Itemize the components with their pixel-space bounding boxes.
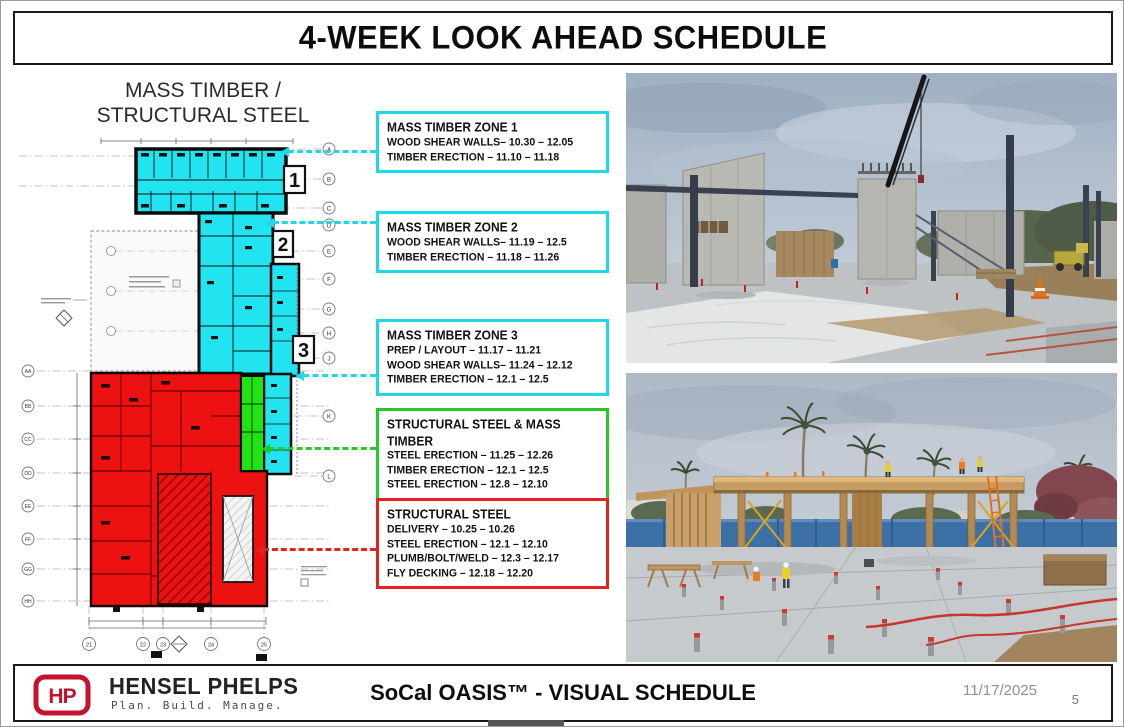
zone-marker-1: 1 xyxy=(284,166,305,193)
leader-zone3-arrowhead xyxy=(295,371,304,381)
leader-steel xyxy=(263,548,376,551)
plan-zone2-mass-timber xyxy=(199,213,273,374)
zone-marker-3: 3 xyxy=(293,336,314,363)
footer-date: 11/17/2025 xyxy=(963,682,1037,699)
callout-line: PLUMB/BOLT/WELD – 12.3 – 12.17 xyxy=(387,551,598,566)
plan-heading-line2: STRUCTURAL STEEL xyxy=(53,104,353,129)
svg-text:K: K xyxy=(327,414,331,420)
leader-zone2 xyxy=(273,221,376,224)
svg-text:FF: FF xyxy=(25,537,31,543)
bottom-scrollbar-thumb[interactable] xyxy=(488,720,564,727)
page-number: 5 xyxy=(1072,692,1079,707)
svg-text:25: 25 xyxy=(261,642,267,648)
svg-text:3: 3 xyxy=(298,340,309,362)
svg-text:E: E xyxy=(327,249,331,255)
hensel-phelps-logo: HP xyxy=(33,674,91,716)
leader-steel-timber-arrowhead xyxy=(261,444,270,454)
svg-text:J: J xyxy=(328,356,331,362)
callout-line: TIMBER ERECTION – 12.1 – 12.5 xyxy=(387,372,598,387)
callout-structural-steel-mass-timber: STRUCTURAL STEEL & MASS TIMBER STEEL ERE… xyxy=(376,408,609,501)
callout-line: PREP / LAYOUT – 11.17 – 11.21 xyxy=(387,343,598,358)
footer: HP HENSEL PHELPS Plan. Build. Manage. So… xyxy=(13,664,1113,722)
callout-line: FLY DECKING – 12.18 – 12.20 xyxy=(387,566,598,581)
callout-title: STRUCTURAL STEEL xyxy=(387,506,598,523)
svg-text:EE: EE xyxy=(25,504,32,510)
callout-mass-timber-zone-1: MASS TIMBER ZONE 1 WOOD SHEAR WALLS– 10.… xyxy=(376,111,609,173)
callout-line: WOOD SHEAR WALLS– 11.24 – 12.12 xyxy=(387,358,598,373)
grid-bubbles-left: AA BB CC DD EE FF GG HH xyxy=(22,365,34,607)
svg-text:1: 1 xyxy=(289,170,300,192)
svg-text:H: H xyxy=(327,331,331,337)
svg-text:24: 24 xyxy=(208,642,214,648)
grid-bubbles-bottom: 21 22 23 24 25 xyxy=(83,636,271,652)
callout-line: WOOD SHEAR WALLS– 11.19 – 12.5 xyxy=(387,235,598,250)
callout-line: TIMBER ERECTION – 11.10 – 11.18 xyxy=(387,150,598,165)
callout-line: STEEL ERECTION – 11.25 – 12.26 xyxy=(387,448,598,463)
svg-text:23: 23 xyxy=(160,642,166,648)
callout-line: STEEL ERECTION – 12.8 – 12.10 xyxy=(387,477,598,492)
svg-text:HH: HH xyxy=(24,599,32,605)
plan-heading-line1: MASS TIMBER / xyxy=(53,79,353,104)
leader-zone1 xyxy=(288,150,376,153)
leader-zone2-arrowhead xyxy=(265,218,274,228)
plan-zone1-mass-timber xyxy=(136,149,286,213)
leader-steel-arrowhead xyxy=(255,545,264,555)
svg-text:BB: BB xyxy=(25,404,32,410)
leader-zone1-arrowhead xyxy=(280,147,289,157)
svg-text:C: C xyxy=(327,206,332,212)
callout-line: TIMBER ERECTION – 12.1 – 12.5 xyxy=(387,463,598,478)
callout-structural-steel: STRUCTURAL STEEL DELIVERY – 10.25 – 10.2… xyxy=(376,498,609,589)
site-photo-concrete-walls-svg xyxy=(626,73,1117,363)
callout-title: MASS TIMBER ZONE 1 xyxy=(387,119,598,136)
svg-text:DD: DD xyxy=(24,471,32,477)
svg-text:2: 2 xyxy=(278,235,289,256)
callout-line: STEEL ERECTION – 12.1 – 12.10 xyxy=(387,537,598,552)
callout-line: TIMBER ERECTION – 11.18 – 11.26 xyxy=(387,250,598,265)
leader-zone3 xyxy=(303,374,376,377)
svg-text:AA: AA xyxy=(25,369,32,375)
svg-text:21: 21 xyxy=(86,642,92,648)
callout-line: WOOD SHEAR WALLS– 10.30 – 12.05 xyxy=(387,135,598,150)
page-title: 4-WEEK LOOK AHEAD SCHEDULE xyxy=(299,19,828,57)
company-tagline: Plan. Build. Manage. xyxy=(111,699,283,712)
callout-mass-timber-zone-3: MASS TIMBER ZONE 3 PREP / LAYOUT – 11.17… xyxy=(376,319,609,396)
title-box: 4-WEEK LOOK AHEAD SCHEDULE xyxy=(13,11,1113,65)
slide: 4-WEEK LOOK AHEAD SCHEDULE MASS TIMBER /… xyxy=(0,0,1124,727)
site-photo-mass-timber-svg xyxy=(626,373,1117,662)
svg-text:F: F xyxy=(327,277,331,283)
leader-steel-timber xyxy=(269,447,376,450)
callout-line: DELIVERY – 10.25 – 10.26 xyxy=(387,522,598,537)
callout-title: MASS TIMBER ZONE 3 xyxy=(387,327,598,344)
floor-plan: 1 2 3 A B C D E F G H J K L AA BB CC xyxy=(1,136,366,664)
svg-text:CC: CC xyxy=(24,437,32,443)
svg-text:B: B xyxy=(327,177,331,183)
site-photo-mass-timber xyxy=(626,373,1117,662)
grid-bubbles-right: A B C D E F G H J K L xyxy=(323,143,335,482)
svg-text:GG: GG xyxy=(24,567,32,573)
site-photo-concrete-walls xyxy=(626,73,1117,363)
callout-title: MASS TIMBER ZONE 2 xyxy=(387,219,598,236)
svg-text:22: 22 xyxy=(140,642,146,648)
svg-text:D: D xyxy=(327,223,332,229)
zone-marker-2: 2 xyxy=(273,231,293,257)
company-name: HENSEL PHELPS xyxy=(109,673,298,700)
svg-text:HP: HP xyxy=(48,685,76,708)
callout-title: STRUCTURAL STEEL & MASS TIMBER xyxy=(387,416,598,450)
plan-heading: MASS TIMBER / STRUCTURAL STEEL xyxy=(53,79,353,129)
callout-mass-timber-zone-2: MASS TIMBER ZONE 2 WOOD SHEAR WALLS– 11.… xyxy=(376,211,609,273)
plan-zone-steel-and-timber xyxy=(241,376,264,471)
svg-text:G: G xyxy=(327,307,332,313)
plan-canopy-area xyxy=(91,231,209,371)
